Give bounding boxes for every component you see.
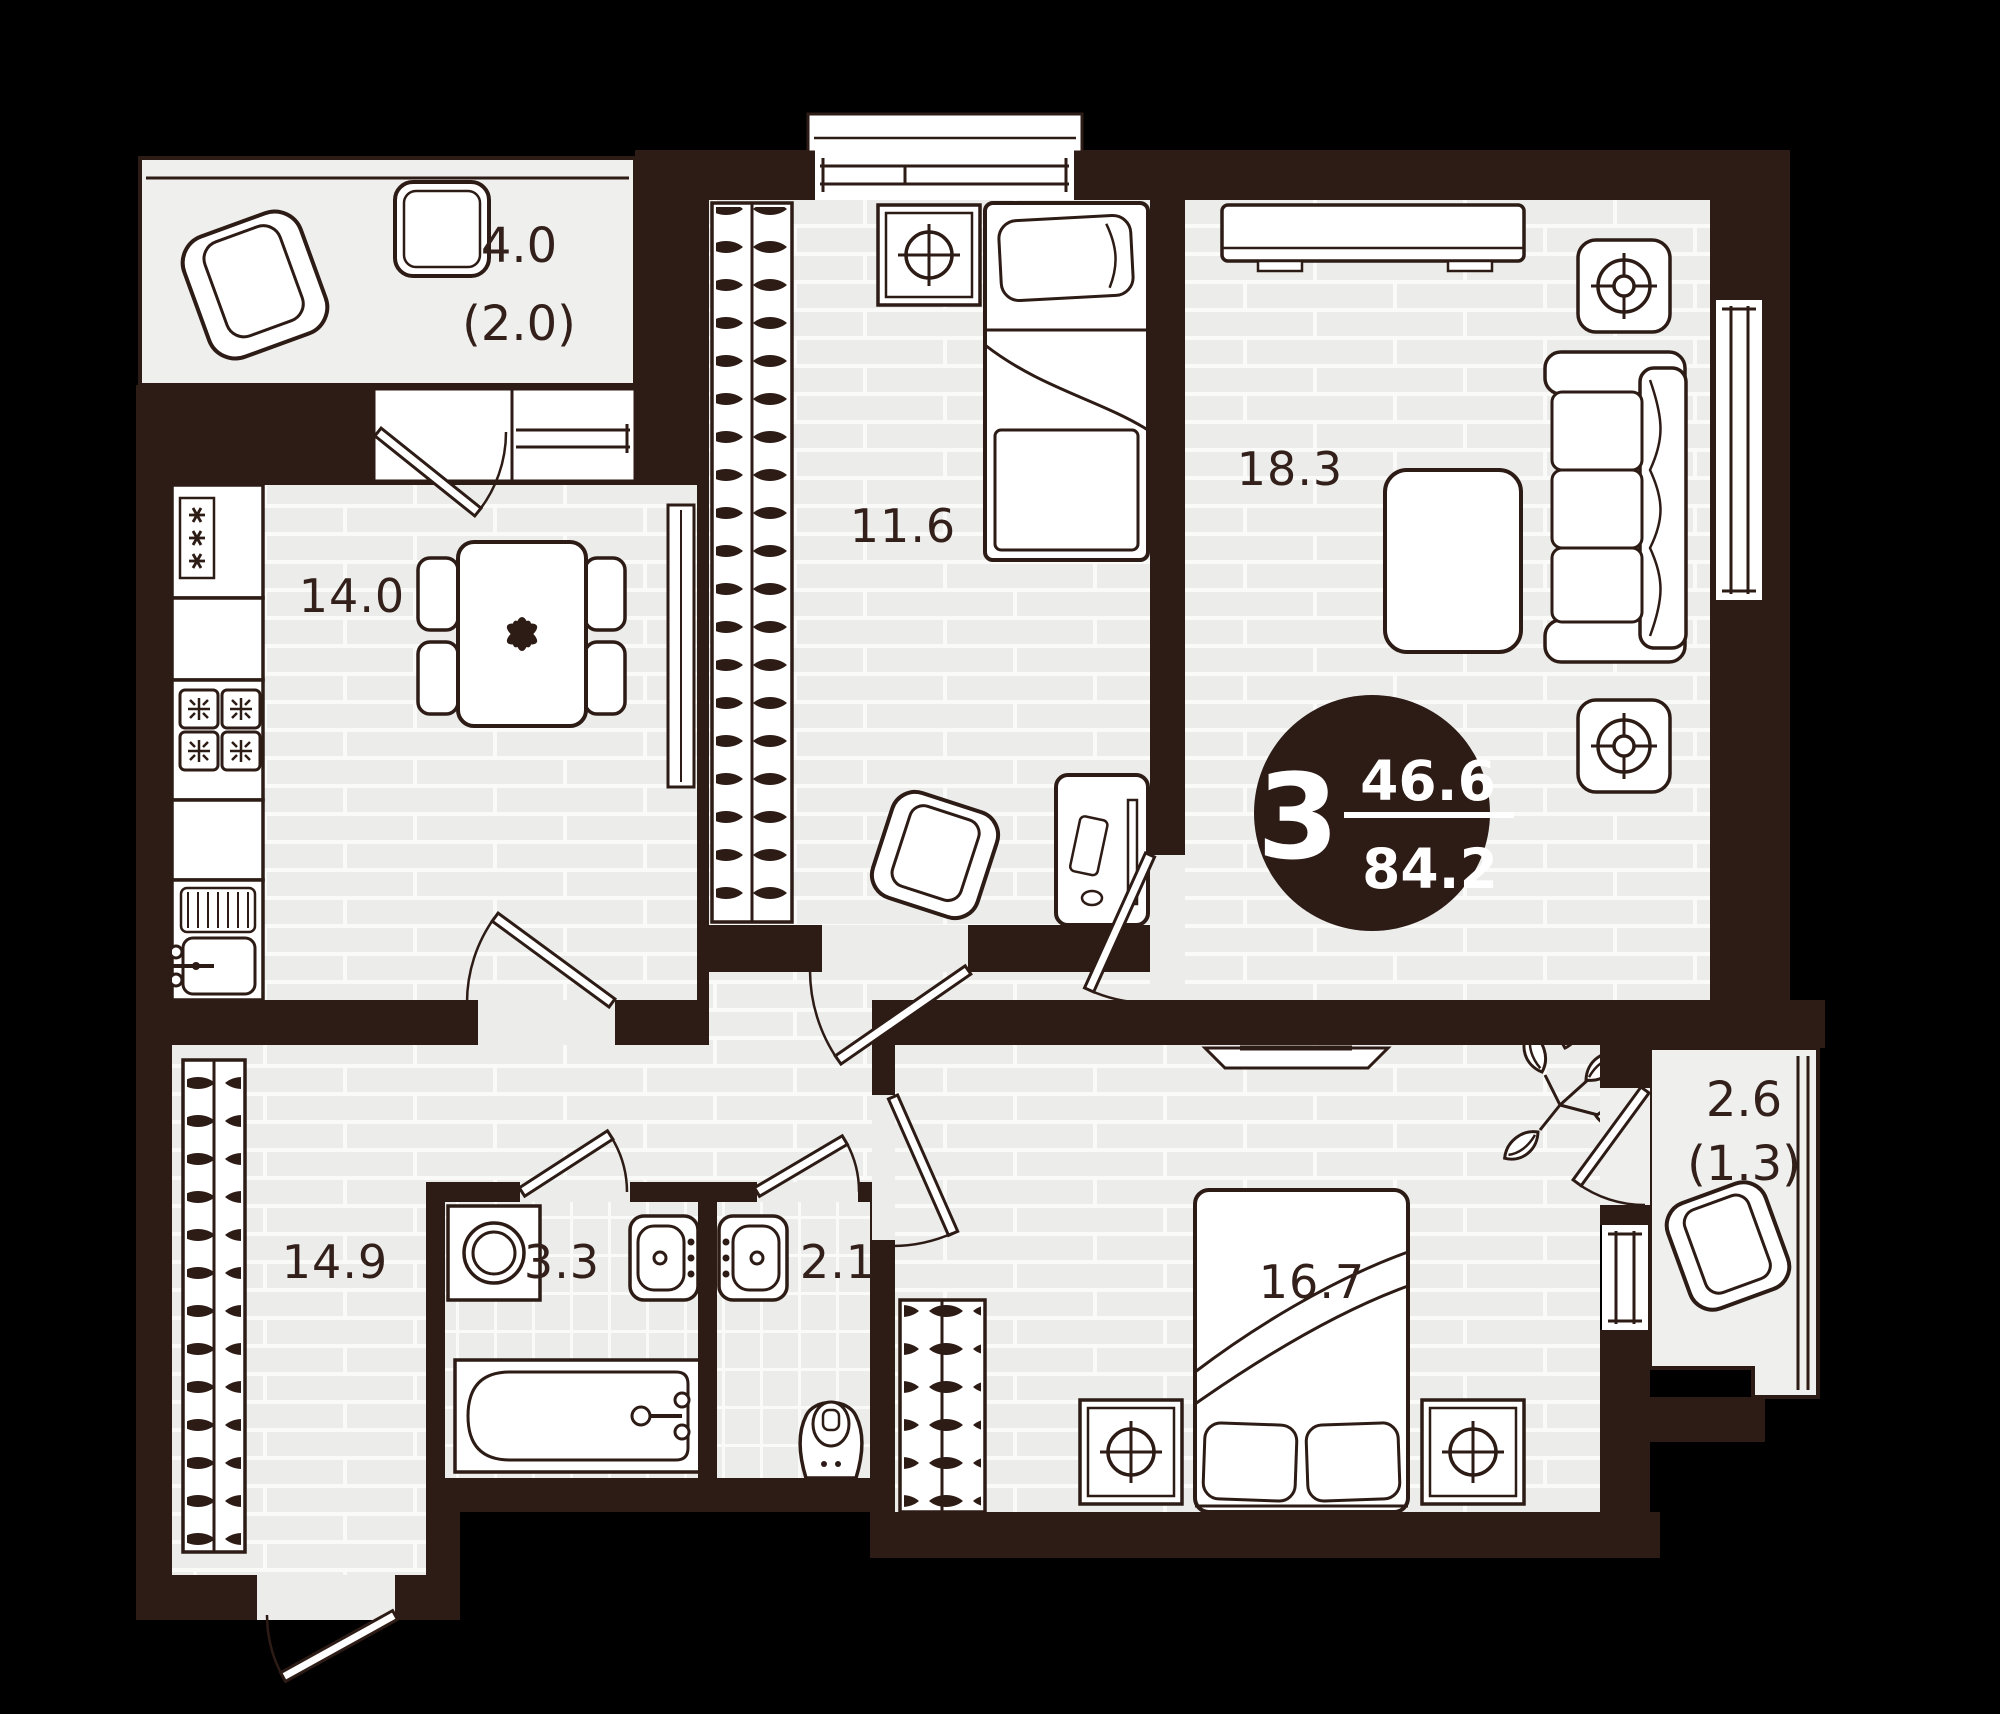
hallway-furniture [183,1060,245,1552]
badge-living-area: 46.6 [1360,749,1496,813]
wall-bedroom-right [1600,1045,1650,1088]
label-living-room-area: 18.3 [1237,442,1343,496]
floor-plan-page: 14.0 11.6 18.3 14.9 3.3 2.1 16.7 4.0 (2.… [0,0,2000,1714]
wall-bedroom-bottom [870,1512,1660,1558]
wall-bath-top [630,1182,757,1202]
toilet [800,1402,862,1478]
label-kitchen-area: 14.0 [299,569,405,623]
badge-rooms-count: 3 [1257,748,1339,886]
window-living-room [1716,300,1762,600]
window-child-room [808,114,1082,200]
washing-machine-door [473,1232,515,1274]
coffee-table [1385,470,1521,652]
wall-bedroom-right [1600,1205,1650,1225]
wall-step [426,1512,460,1575]
sofa-cushion [1552,470,1642,548]
side-table-top [404,191,480,267]
wall-bath-bottom [426,1478,895,1512]
dining-chair [418,642,458,714]
tv-console-foot [1448,261,1492,271]
sofa-backrest [1640,368,1686,648]
kitchen-counter-upper [172,598,263,680]
bedroom-tv [1205,1048,1388,1068]
wall-bath-left [426,1182,445,1512]
window-bedroom [1602,1225,1648,1330]
stove-burner-icon [222,690,260,728]
dining-chair [585,558,625,630]
stove-burner-icon [180,690,218,728]
kitchen-counter-lower [172,800,263,880]
label-hallway-area: 14.9 [282,1235,388,1289]
desk-mouse [1082,891,1102,905]
bed-blanket [995,430,1138,550]
wall-child-bottom [709,925,822,972]
bathtub [455,1360,700,1472]
tv-console [1222,205,1524,261]
wall-child-bottom [968,925,1150,972]
label-balcony-top-area: 4.0 [481,218,557,274]
bed-pillow [998,215,1134,302]
wall-hall-bottom [136,1575,257,1620]
wall-middle-band [872,1000,1710,1045]
wall-child-living [1150,150,1185,855]
label-child-room-area: 11.6 [850,499,956,553]
label-bedroom-area: 16.7 [1259,1255,1365,1309]
double-bed [1195,1190,1408,1512]
wall-top [709,150,815,200]
wall-kitchen-child [697,485,709,1000]
drain-rack-lines [188,892,248,928]
label-bathroom-area: 3.3 [524,1235,600,1289]
wall-kitchen-bottom [615,1000,709,1045]
bathroom-sink [630,1216,698,1300]
wall-kitchen-bottom [136,1000,478,1045]
wall-hall-bottom [395,1575,460,1620]
stove-burner-icon [180,732,218,770]
dining-chair [418,558,458,630]
stove-burner-icon [222,732,260,770]
sofa-cushion [1552,548,1642,622]
tv-console-foot [1258,261,1302,271]
floor-plan-svg: 14.0 11.6 18.3 14.9 3.3 2.1 16.7 4.0 (2.… [0,0,2000,1714]
wall-bedroom-left [872,1045,895,1095]
sofa [1545,352,1686,662]
label-balcony-right-area: 2.6 [1706,1072,1782,1128]
label-wc-area: 2.1 [800,1235,876,1289]
wall-balcony-right-bottom [1650,1397,1765,1442]
dining-chair [585,642,625,714]
sofa-cushion [1552,392,1642,470]
label-balcony-right-coeff: (1.3) [1687,1136,1801,1192]
wc-sink [719,1216,787,1300]
wall-bedroom-right [1600,1330,1650,1512]
badge-total-area: 84.2 [1362,837,1498,901]
wall-bath-wc [698,1202,717,1478]
label-balcony-top-coeff: (2.0) [462,296,576,352]
